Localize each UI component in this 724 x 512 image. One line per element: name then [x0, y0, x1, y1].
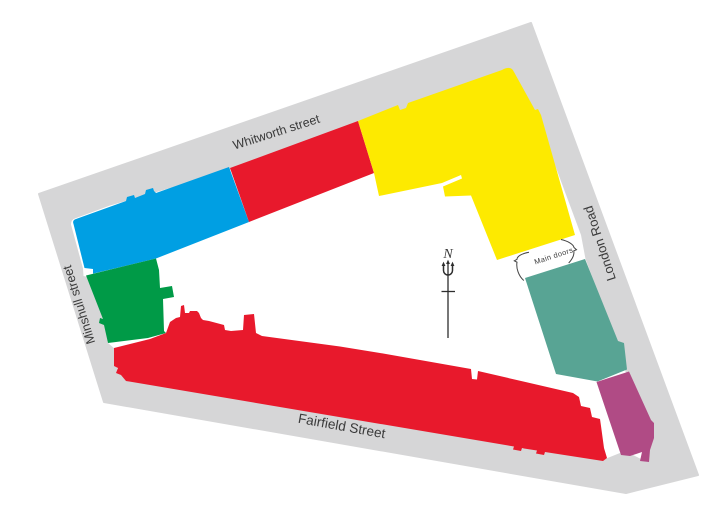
- svg-text:N: N: [442, 247, 453, 262]
